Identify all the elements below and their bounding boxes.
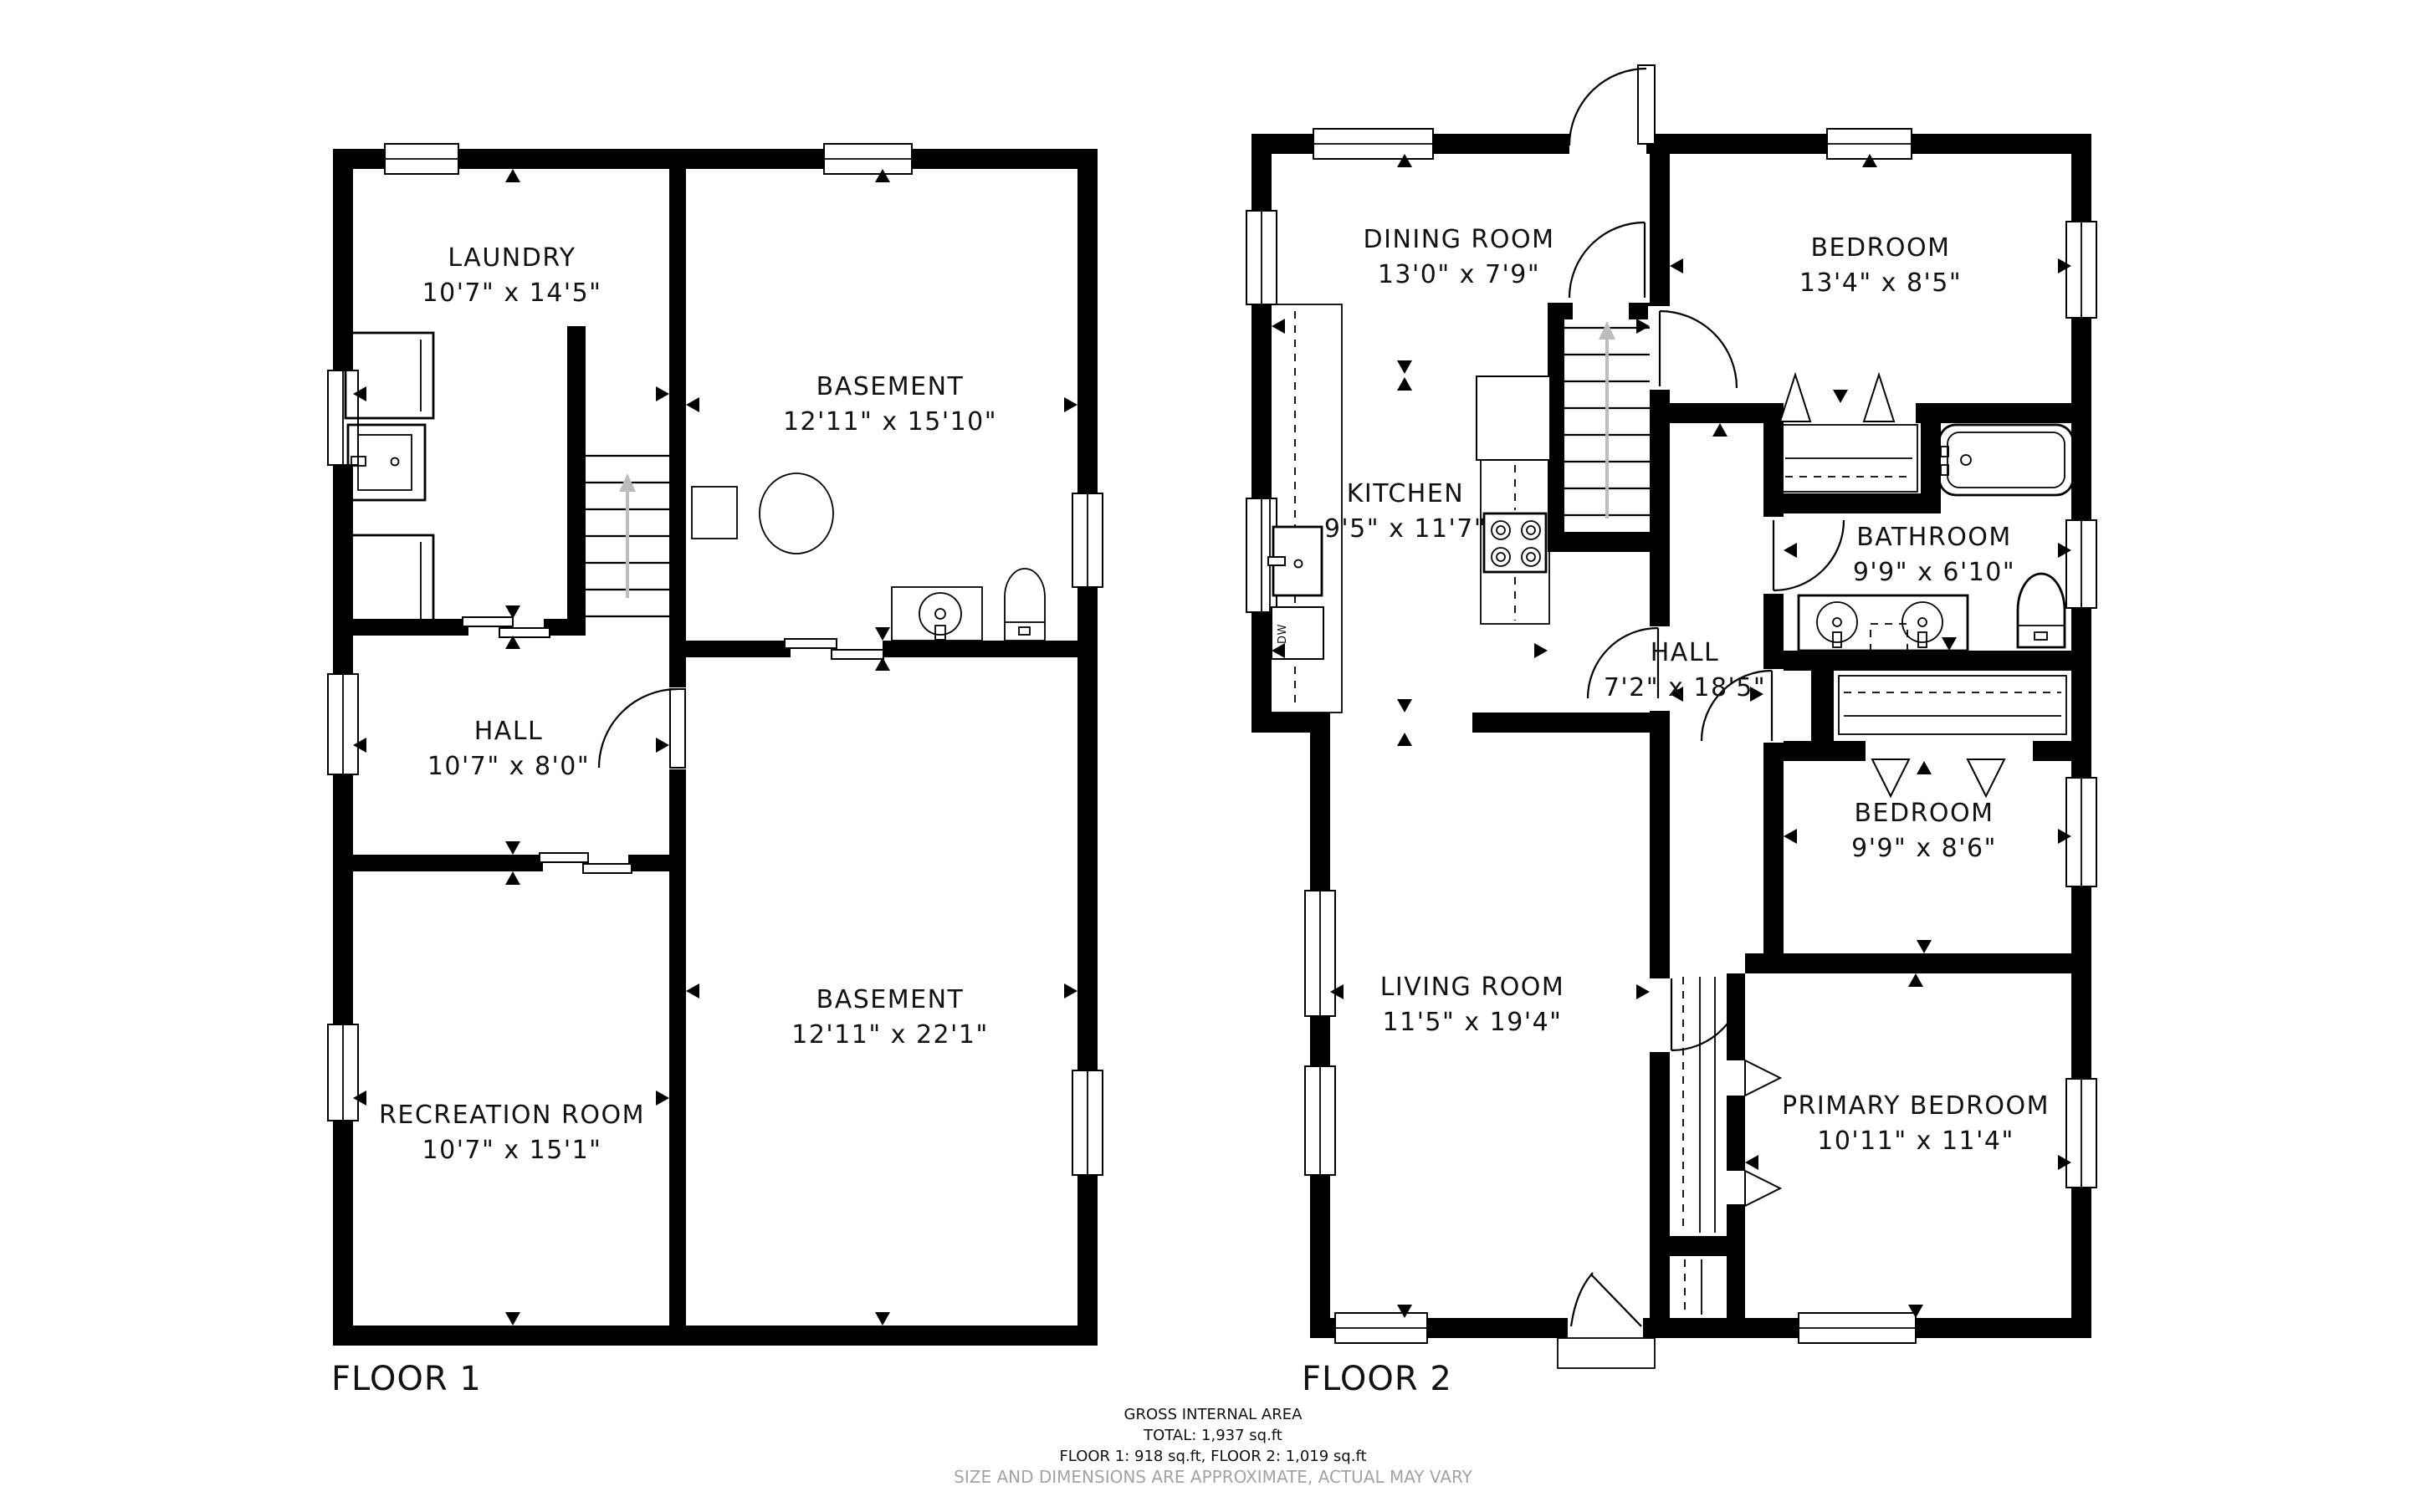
bedroom-mid-closet	[1839, 676, 2066, 796]
room-dims-basement-upper: 12'11" x 15'10"	[783, 407, 997, 437]
room-dims-bedroom-mid: 9'9" x 8'6"	[1851, 834, 1997, 863]
room-label-bedroom-top: BEDROOM	[1810, 233, 1950, 263]
entry-closet	[1685, 1259, 1702, 1315]
kitchen-sink-icon	[1268, 527, 1322, 595]
room-dims-laundry: 10'7" x 14'5"	[422, 278, 602, 308]
floor-areas-label: FLOOR 1: 918 sq.ft, FLOOR 2: 1,019 sq.ft	[1059, 1448, 1366, 1465]
floor1-plan: LAUNDRY 10'7" x 14'5" BASEMENT 12'11" x …	[328, 144, 1103, 1398]
stair-top-door	[1569, 222, 1645, 298]
water-heater-icon	[1005, 569, 1045, 641]
floor1-stairs	[586, 456, 669, 616]
room-label-dining: DINING ROOM	[1364, 225, 1555, 254]
room-dims-basement-lower: 12'11" x 22'1"	[791, 1020, 989, 1050]
dishwasher-label: DW	[1277, 624, 1289, 644]
floor2-stairs	[1564, 321, 1650, 518]
bathtub-icon	[1939, 425, 2073, 495]
tank-icon	[760, 473, 833, 554]
footer-text: GROSS INTERNAL AREA TOTAL: 1,937 sq.ft F…	[954, 1406, 1472, 1487]
utility-sink-icon	[348, 425, 425, 500]
gross-internal-area-label: GROSS INTERNAL AREA	[1124, 1406, 1303, 1423]
room-dims-living: 11'5" x 19'4"	[1383, 1008, 1563, 1037]
floor1-title: FLOOR 1	[331, 1360, 482, 1398]
room-label-primary: PRIMARY BEDROOM	[1782, 1091, 2050, 1121]
total-area-label: TOTAL: 1,937 sq.ft	[1143, 1427, 1282, 1444]
washing-machine-icon	[892, 587, 982, 641]
disclaimer-label: SIZE AND DIMENSIONS ARE APPROXIMATE, ACT…	[954, 1467, 1472, 1487]
room-label-recreation: RECREATION ROOM	[379, 1101, 645, 1130]
floor2-title: FLOOR 2	[1302, 1360, 1452, 1398]
toilet-icon	[2018, 574, 2065, 647]
room-label-basement-upper: BASEMENT	[816, 372, 965, 401]
room-label-hall-f2: HALL	[1651, 638, 1720, 667]
room-label-bathroom: BATHROOM	[1856, 523, 2012, 552]
room-label-basement-lower: BASEMENT	[816, 985, 965, 1014]
room-label-living: LIVING ROOM	[1380, 973, 1565, 1002]
floor-plan-page: LAUNDRY 10'7" x 14'5" BASEMENT 12'11" x …	[0, 0, 2421, 1512]
floor2-plan: DW	[1246, 65, 2096, 1398]
room-dims-recreation: 10'7" x 15'1"	[422, 1136, 602, 1165]
room-dims-hall-f1: 10'7" x 8'0"	[427, 752, 590, 781]
floor1-walls	[333, 149, 1098, 1346]
furnace-icon	[692, 487, 737, 539]
bathroom-door	[1774, 520, 1844, 590]
room-label-bedroom-mid: BEDROOM	[1854, 799, 1994, 828]
room-dims-dining: 13'0" x 7'9"	[1378, 260, 1540, 289]
stove-icon	[1477, 376, 1550, 624]
room-dims-primary: 10'11" x 11'4"	[1817, 1126, 2014, 1156]
bedroom-top-closet	[1780, 375, 1917, 492]
room-dims-kitchen: 9'5" x 11'7"	[1324, 514, 1487, 544]
room-dims-bedroom-top: 13'4" x 8'5"	[1799, 268, 1962, 298]
room-dims-hall-f2: 7'2" x 18'5"	[1604, 673, 1766, 702]
room-dims-bathroom: 9'9" x 6'10"	[1853, 558, 2015, 587]
room-label-laundry: LAUNDRY	[448, 243, 576, 273]
dryer-icon	[345, 535, 433, 626]
floor2-room-labels: DINING ROOM 13'0" x 7'9" BEDROOM 13'4" x…	[1324, 225, 2050, 1156]
bathroom-vanity	[1799, 595, 1968, 651]
floor1-room-labels: LAUNDRY 10'7" x 14'5" BASEMENT 12'11" x …	[379, 243, 997, 1165]
room-label-kitchen: KITCHEN	[1347, 479, 1465, 508]
entry-step	[1558, 1338, 1655, 1368]
floor-plan-canvas: LAUNDRY 10'7" x 14'5" BASEMENT 12'11" x …	[0, 0, 2421, 1512]
room-label-hall-f1: HALL	[474, 717, 544, 746]
floor1-hall-door	[599, 687, 686, 769]
